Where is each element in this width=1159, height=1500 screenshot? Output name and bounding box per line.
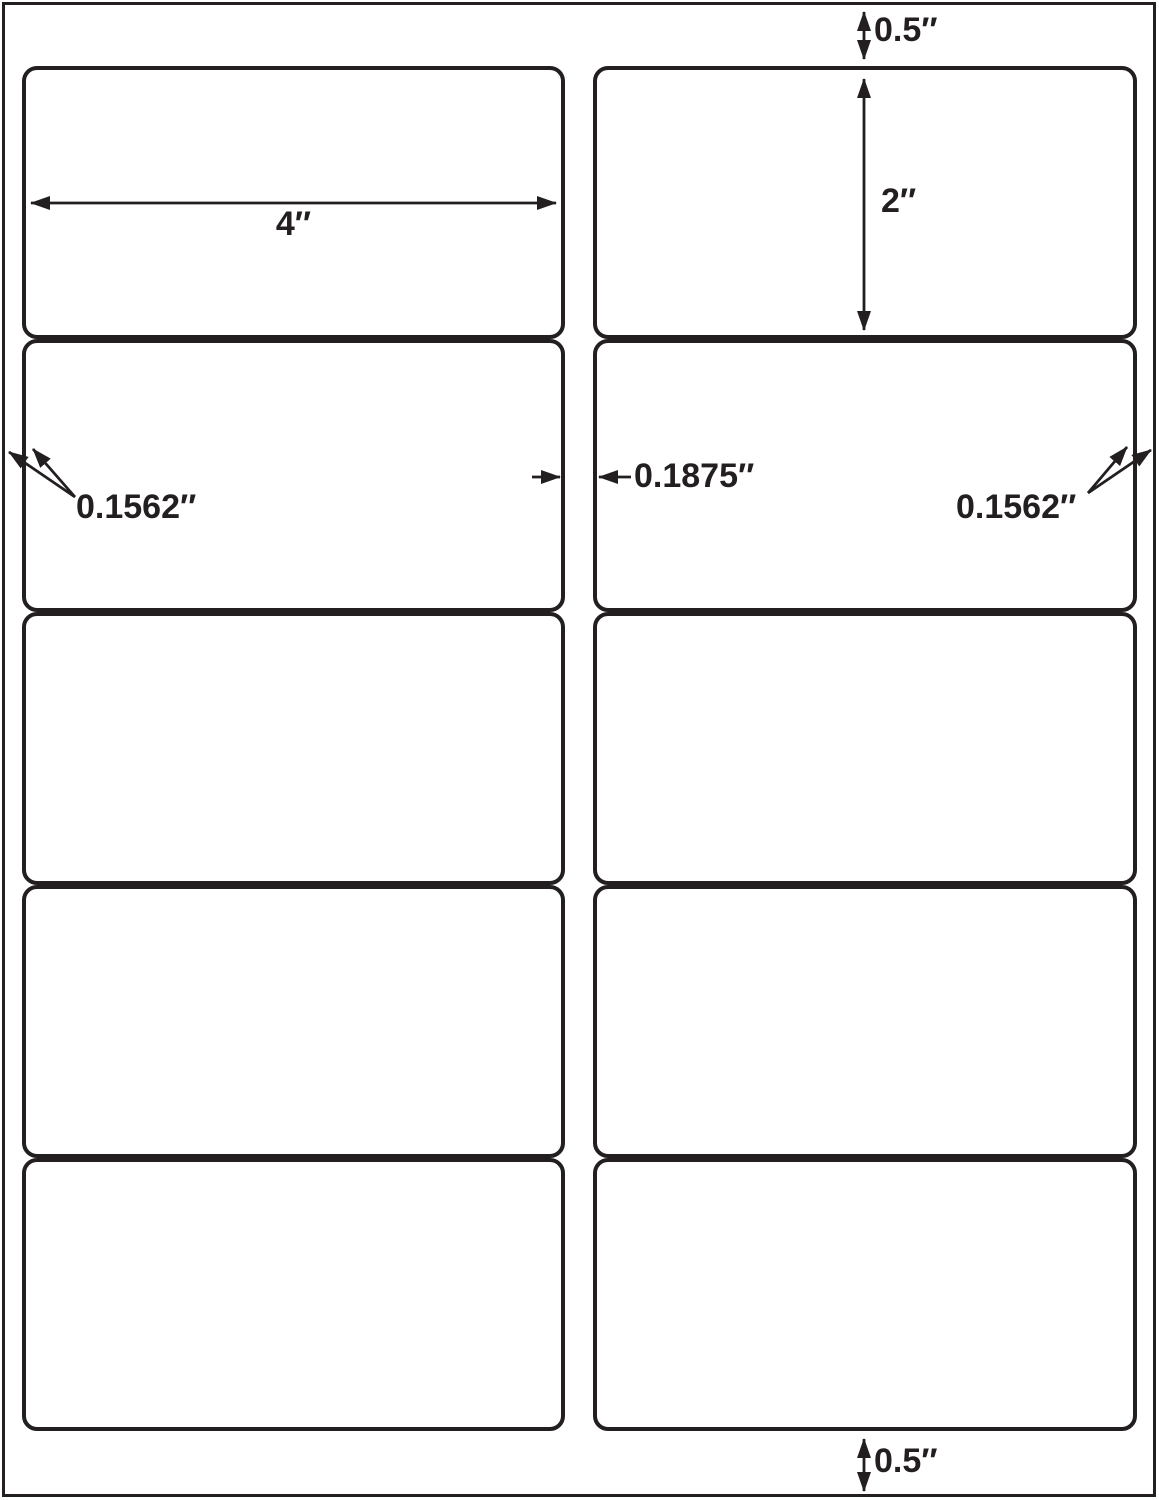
label-cell	[22, 339, 565, 612]
label-height-value: 2″	[881, 183, 916, 220]
label-cell	[22, 66, 565, 339]
label-cell	[593, 1158, 1137, 1431]
top-margin-value: 0.5″	[874, 12, 938, 49]
label-cell	[22, 1158, 565, 1431]
label-template-diagram: 0.5″ 4″ 2″ 0.1562″ 0.1875″ 0.1562″ 0.5″	[0, 0, 1159, 1500]
left-margin-value: 0.1562″	[76, 489, 196, 526]
column-gap-value: 0.1875″	[634, 458, 754, 495]
label-cell	[22, 612, 565, 885]
label-cell	[22, 885, 565, 1158]
bottom-margin-value: 0.5″	[874, 1443, 938, 1480]
right-margin-value: 0.1562″	[956, 489, 1076, 526]
label-cell	[593, 66, 1137, 339]
label-cell	[593, 885, 1137, 1158]
label-width-value: 4″	[22, 206, 565, 243]
label-cell	[593, 612, 1137, 885]
labels-grid	[22, 66, 1137, 1431]
